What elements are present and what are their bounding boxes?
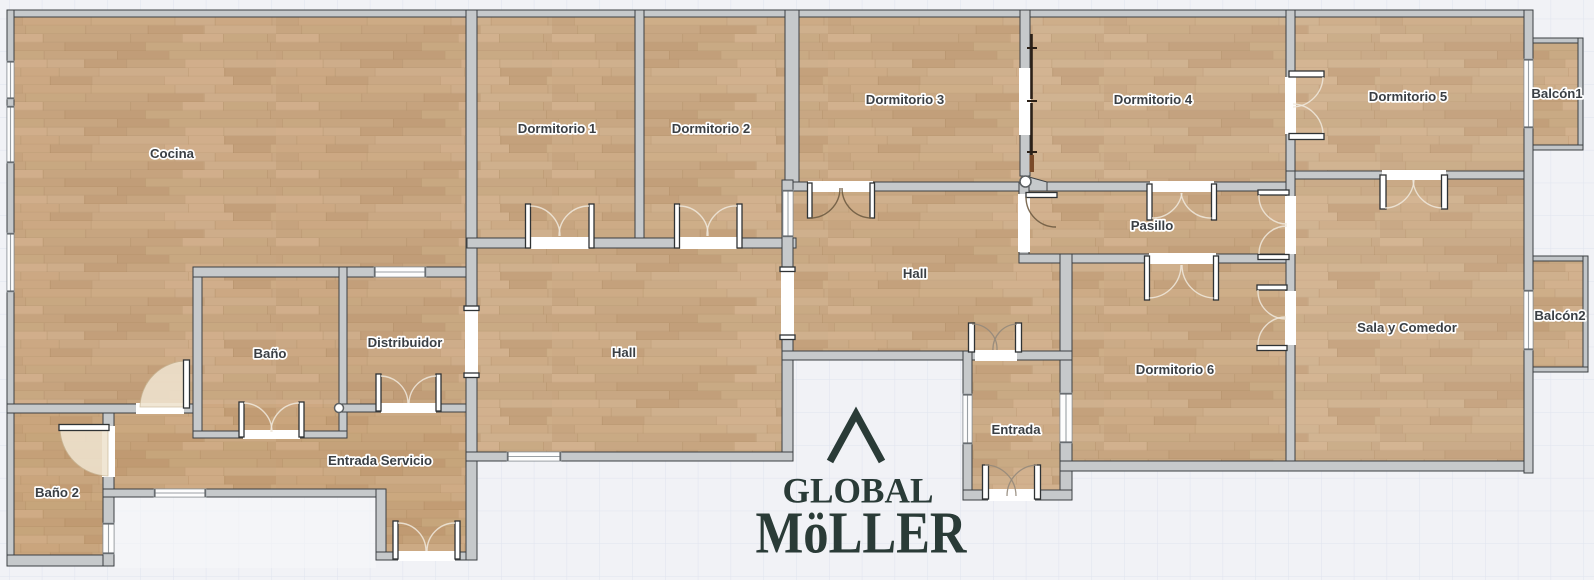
svg-text:MöLLER: MöLLER [756,500,968,566]
svg-text:Baño: Baño [254,346,287,361]
svg-text:Hall: Hall [903,266,927,281]
svg-text:Entrada Servicio: Entrada Servicio [328,453,432,468]
svg-text:Sala y Comedor: Sala y Comedor [1357,320,1457,335]
svg-text:Dormitorio 3: Dormitorio 3 [866,92,944,107]
svg-text:Pasillo: Pasillo [1131,218,1174,233]
svg-text:Balcón2: Balcón2 [1534,308,1585,323]
svg-text:Entrada: Entrada [991,422,1041,437]
svg-text:Distribuidor: Distribuidor [368,335,443,350]
svg-text:Dormitorio 4: Dormitorio 4 [1114,92,1193,107]
svg-text:Hall: Hall [612,345,636,360]
svg-text:Dormitorio 5: Dormitorio 5 [1369,89,1447,104]
svg-text:Dormitorio 1: Dormitorio 1 [518,121,596,136]
svg-text:Cocina: Cocina [150,146,195,161]
svg-text:Dormitorio 2: Dormitorio 2 [672,121,750,136]
svg-text:Baño 2: Baño 2 [35,485,79,500]
svg-text:Dormitorio 6: Dormitorio 6 [1136,362,1214,377]
svg-text:Balcón1: Balcón1 [1531,86,1582,101]
